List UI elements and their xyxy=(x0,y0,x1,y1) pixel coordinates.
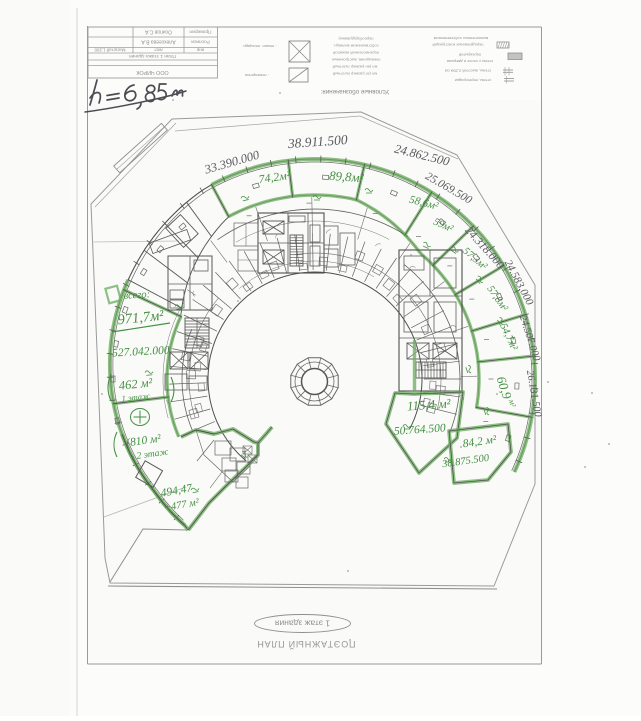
svg-text:всего:: всего: xyxy=(123,289,150,302)
svg-text:перечисленной нежилой: перечисленной нежилой xyxy=(333,51,379,56)
svg-text:ПОЭТАЖНЫЙ ПЛАН: ПОЭТАЖНЫЙ ПЛАН xyxy=(257,639,356,650)
svg-text:переоборудованы): переоборудованы) xyxy=(338,37,374,42)
svg-text:лист: лист xyxy=(154,48,163,53)
svg-text:переделанных конструкций: переделанных конструкций xyxy=(433,43,484,48)
svg-text:помещения, выстроенные: помещения, выстроенные xyxy=(331,58,380,63)
svg-text:Росписи: Росписи xyxy=(191,39,210,45)
svg-text:инв: инв xyxy=(196,48,204,53)
svg-text:Осипов С.А: Осипов С.А xyxy=(144,29,172,35)
svg-text:собственником жилищн.: собственником жилищн. xyxy=(333,44,378,49)
svg-text:- нежил. площади: - нежил. площади xyxy=(243,44,276,49)
svg-text:перекрытий: перекрытий xyxy=(459,53,481,58)
svg-text:План 1 этажа здания: План 1 этажа здания xyxy=(129,53,176,59)
svg-text:1 этаж здания: 1 этаж здания xyxy=(274,618,330,628)
svg-text:- помещения: - помещения xyxy=(245,73,269,78)
svg-text:Масштаб 1:200: Масштаб 1:200 xyxy=(94,48,126,53)
svg-text:Алексеева В.А: Алексеева В.А xyxy=(141,39,176,45)
svg-text:Проверил: Проверил xyxy=(189,29,211,35)
svg-text:мл (ин размер льготный: мл (ин размер льготный xyxy=(333,65,378,70)
svg-text:выполненных собственником: выполненных собственником xyxy=(433,36,488,41)
svg-text:Условные обозначения:: Условные обозначения: xyxy=(320,88,389,95)
svg-text:мл (ат размер льготный: мл (ат размер льготный xyxy=(333,72,377,77)
svg-text:стены, высотой 2,20м см: стены, высотой 2,20м см xyxy=(445,69,492,74)
svg-text:89,8м²: 89,8м² xyxy=(329,169,364,185)
svg-text:ООО ЧИРОК: ООО ЧИРОК xyxy=(135,69,168,75)
svg-text:стены с сносе и дверьми: стены с сносе и дверьми xyxy=(447,59,493,64)
svg-text:стены, перегородки: стены, перегородки xyxy=(455,78,491,83)
